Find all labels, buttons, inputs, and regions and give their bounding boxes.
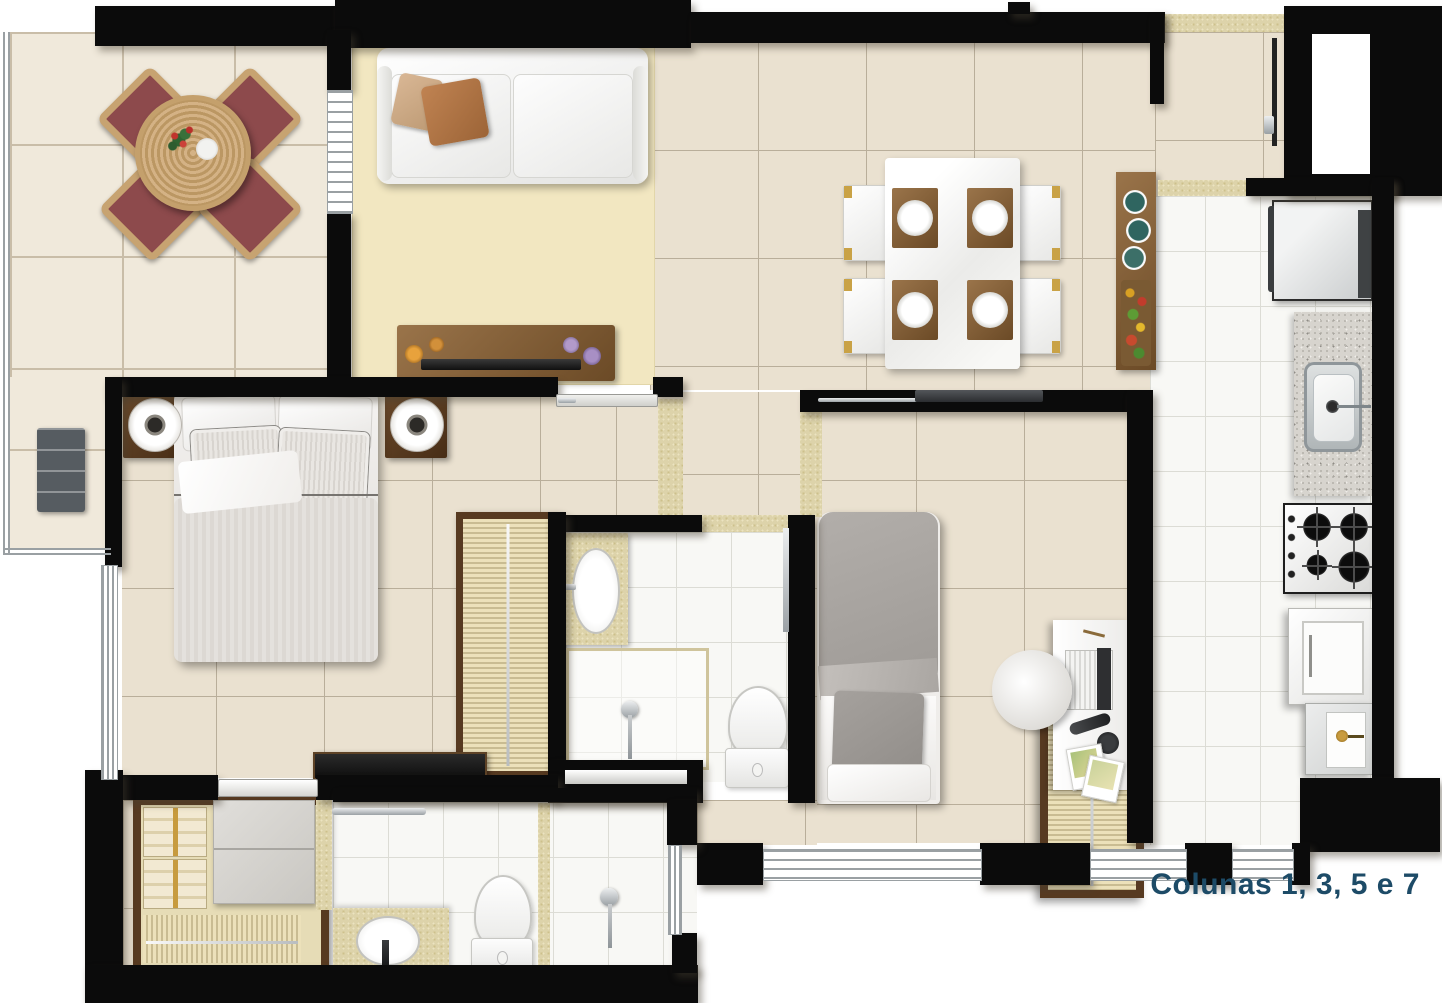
bedroom1-window xyxy=(101,565,118,780)
closet-hanging-rail xyxy=(143,915,301,963)
bed-duvet xyxy=(174,498,378,662)
wall xyxy=(1127,390,1153,843)
bowl xyxy=(1122,246,1146,270)
balcony-glass-railing-left xyxy=(3,32,10,555)
nightstand-lamp xyxy=(128,398,182,452)
shower2-arm xyxy=(608,904,612,948)
chair-gold-accent xyxy=(1052,341,1060,353)
flush-button xyxy=(752,763,763,777)
stove-knobs xyxy=(1285,507,1298,587)
wall xyxy=(672,933,697,973)
wall xyxy=(105,377,122,567)
bathroom1-threshold xyxy=(702,515,790,532)
clothes-strap xyxy=(173,860,178,908)
grill xyxy=(37,428,85,512)
sofa-armrest xyxy=(633,66,648,181)
entry-door-handle xyxy=(1264,116,1274,134)
dining-chair xyxy=(1013,278,1061,354)
plate xyxy=(972,292,1008,328)
chair-gold-accent xyxy=(1052,279,1060,291)
sofa-cushion xyxy=(513,74,633,178)
oven-handle xyxy=(1309,635,1312,677)
balcony-sliding-door xyxy=(327,90,353,214)
decor-bowl xyxy=(405,345,423,363)
refrigerator-handle xyxy=(1268,206,1274,292)
tank-faucet xyxy=(1336,730,1348,742)
bedroom2-floor-corner xyxy=(697,800,817,845)
wall xyxy=(333,788,697,802)
plate xyxy=(897,292,933,328)
pencil xyxy=(1083,629,1105,637)
plate xyxy=(972,200,1008,236)
laptop-screen xyxy=(1097,648,1111,710)
double-bed xyxy=(174,390,378,662)
stove-burner xyxy=(1301,511,1333,543)
chair-gold-accent xyxy=(1052,248,1060,260)
decor-bowl xyxy=(429,337,444,352)
wall xyxy=(691,12,1165,43)
bathroom2-glass-door xyxy=(668,845,682,935)
dining-table xyxy=(885,158,1020,369)
table-centerpiece xyxy=(932,234,974,292)
bar-counter xyxy=(1116,172,1156,370)
bathroom1-sink xyxy=(572,548,620,634)
hall-partition xyxy=(658,399,683,517)
stove-burner xyxy=(1338,511,1370,543)
stove-burner xyxy=(1305,553,1329,577)
polaroid-photo xyxy=(1087,759,1118,790)
plate xyxy=(897,200,933,236)
kitchen-sink xyxy=(1304,362,1362,452)
single-bed xyxy=(817,512,940,804)
shower-box-sill xyxy=(565,770,687,784)
bathroom2-faucet xyxy=(382,940,389,968)
laundry-tank xyxy=(1305,703,1373,775)
wall xyxy=(95,6,343,46)
wall xyxy=(697,843,763,885)
closet-bath-partition xyxy=(316,800,332,910)
nightstand-lamp xyxy=(390,398,444,452)
dining-chair xyxy=(1013,185,1061,261)
fruit-platter xyxy=(1121,280,1151,366)
bedroom2-sliding-door xyxy=(915,390,1043,402)
clothes-strap xyxy=(173,808,178,856)
floor-plan: Colunas 1, 3, 5 e 7 xyxy=(0,0,1442,1003)
toilet-tank xyxy=(725,748,789,788)
entry-alcove xyxy=(1312,34,1370,174)
decor-bowl xyxy=(583,347,601,365)
bed2-white-pillow xyxy=(827,764,931,802)
dining-chair xyxy=(843,185,891,261)
chair-gold-accent xyxy=(844,186,852,198)
entry-threshold xyxy=(1162,14,1284,32)
wall xyxy=(548,515,702,532)
folded-clothes xyxy=(143,859,207,909)
bathroom2-partition xyxy=(538,803,550,971)
wall xyxy=(327,30,351,90)
closet-dresser xyxy=(213,800,315,904)
sofa xyxy=(377,48,648,184)
wall xyxy=(980,843,1090,885)
wall-pillar xyxy=(1008,2,1030,14)
sink-faucet xyxy=(1337,405,1371,408)
chair-gold-accent xyxy=(844,279,852,291)
wall xyxy=(327,212,351,380)
chair-gold-accent xyxy=(1052,186,1060,198)
wall xyxy=(1372,178,1394,790)
chair-gold-accent xyxy=(844,248,852,260)
folded-clothes xyxy=(143,807,207,857)
bedroom2-window xyxy=(763,849,982,881)
oven-cabinet xyxy=(1288,608,1376,705)
wall-corner-block xyxy=(1300,778,1440,852)
wall xyxy=(788,515,815,803)
dresser-seam xyxy=(214,848,314,850)
tank-faucet-arm xyxy=(1348,735,1364,738)
wall xyxy=(1150,12,1164,104)
bathroom1-shower xyxy=(566,648,709,770)
bedroom1-door-handle xyxy=(558,398,576,403)
closet-sliding-door xyxy=(218,779,318,797)
stove-burner xyxy=(1336,549,1372,585)
bowl xyxy=(1126,218,1151,243)
tv-console xyxy=(397,325,615,381)
wall xyxy=(548,512,566,780)
balcony-glass-railing-bottom xyxy=(3,548,111,555)
kitchen-threshold xyxy=(1158,180,1248,196)
wall xyxy=(335,0,691,48)
sofa-pillow xyxy=(420,77,490,147)
dining-chair xyxy=(843,278,891,354)
flush-button xyxy=(497,951,508,965)
sofa-armrest xyxy=(377,66,392,181)
caption-colunas: Colunas 1, 3, 5 e 7 xyxy=(1120,868,1420,902)
bowl xyxy=(1123,190,1147,214)
stove xyxy=(1283,503,1376,594)
chair-gold-accent xyxy=(844,341,852,353)
bedroom1-nook-floor xyxy=(548,397,658,515)
refrigerator-side-panel xyxy=(1358,210,1371,298)
hall-partition xyxy=(800,399,822,517)
decor-bowl xyxy=(563,337,579,353)
entry-floor xyxy=(1155,32,1285,180)
bathroom1-towel-bar xyxy=(783,528,789,632)
flower-centerpiece xyxy=(160,118,202,158)
wall xyxy=(122,775,218,800)
wall xyxy=(105,377,558,397)
shower-arm xyxy=(628,715,632,759)
tv xyxy=(421,359,581,370)
wall xyxy=(85,965,698,1003)
wardrobe xyxy=(456,512,560,778)
wall xyxy=(667,800,697,845)
desk-chair xyxy=(992,650,1072,730)
bathroom2-towel-bar xyxy=(332,808,426,815)
